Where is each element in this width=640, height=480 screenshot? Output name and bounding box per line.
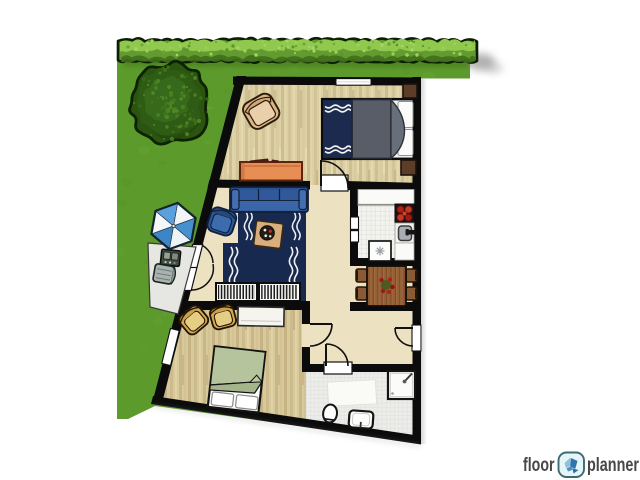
svg-text:floor: floor — [523, 454, 555, 476]
svg-text:planner: planner — [587, 454, 639, 476]
